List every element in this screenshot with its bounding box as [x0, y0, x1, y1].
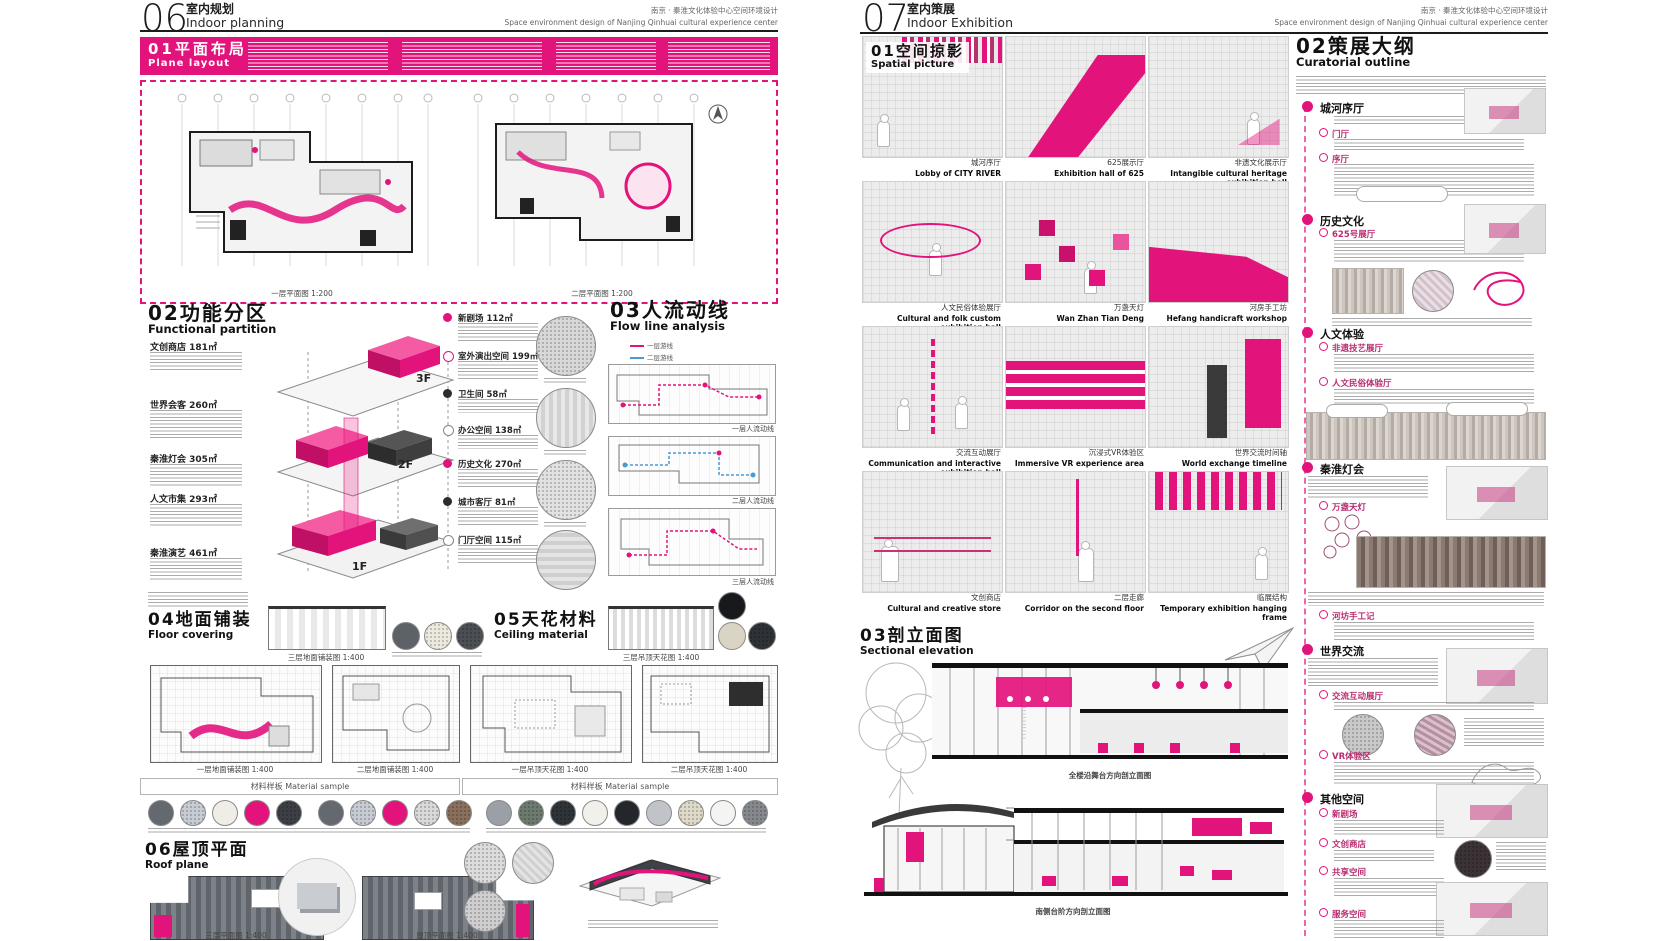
timeline-subitem: 新剧场 — [1332, 808, 1358, 820]
timeline-subitem: VR体验区 — [1332, 750, 1371, 762]
ceiling-plan-1 — [470, 665, 632, 763]
gallery-cell: 人文民俗体验展厅 Cultural and folk custom exhibi… — [862, 181, 1001, 332]
north-arrow — [709, 105, 727, 123]
render-image — [1005, 326, 1146, 448]
ceiling-plan-caption: 二层吊顶天花图 1:400 — [634, 764, 784, 775]
caption-cn: 临展结构 — [1148, 593, 1287, 604]
caption-cn: 河房手工坊 — [1148, 303, 1287, 314]
material-sample-bar: 材料样板 Material sample — [140, 778, 460, 795]
banner-paragraph — [556, 42, 656, 71]
presentation-board: 06 室内规划 Indoor planning 南京 · 秦淮文化体验中心空间环… — [0, 0, 1666, 941]
sample-swatch — [276, 800, 302, 826]
sample-swatch — [518, 800, 544, 826]
knot-sketch — [1464, 262, 1544, 318]
legend-dot — [443, 351, 454, 362]
roof-plan-caption: 屋顶平面图 1:400 — [362, 930, 532, 941]
gallery-cell: 沉浸式VR体验区 Immersive VR experience area — [1005, 326, 1144, 468]
gallery-cell: 交流互动展厅 Communication and interactive exh… — [862, 326, 1001, 477]
photo-strip — [1356, 536, 1546, 588]
sample-swatch — [710, 800, 736, 826]
ceiling-detail-caption: 三层吊顶天花图 1:400 — [586, 652, 736, 663]
section-caption-2: 南侧台阶方向剖立面图 — [893, 906, 1253, 917]
flow-plan-2 — [608, 436, 776, 496]
caption-en: Exhibition hall of 625 — [1005, 169, 1144, 178]
floor-plan-level2 — [460, 90, 740, 276]
legend-dot — [443, 535, 454, 546]
timeline-subitem: 河坊手工记 — [1332, 610, 1375, 622]
sample-swatch — [550, 800, 576, 826]
material-circle — [748, 622, 776, 650]
caption-cn: 世界交流时间轴 — [1148, 448, 1287, 459]
sample-swatch — [742, 800, 768, 826]
plan-layout-box: 一层平面图 1:200 二层平面图 1:200 — [140, 80, 778, 304]
timeline-subitem: 文创商店 — [1332, 838, 1366, 850]
project-title: 南京 · 秦淮文化体验中心空间环境设计Space environment des… — [470, 5, 778, 29]
floor-covering-detail-caption: 三层地面铺装图 1:400 — [246, 652, 406, 663]
timeline-axis — [1304, 106, 1306, 936]
photo-thumbnail — [1332, 268, 1404, 314]
render-image — [1148, 181, 1289, 303]
roof-plan-caption: 三层平面图 1:400 — [150, 930, 322, 941]
ceiling-plan-2 — [642, 665, 778, 763]
photo-circle — [1454, 840, 1492, 878]
section-caption-1: 全楼沿舞台方向剖立面图 — [930, 770, 1290, 781]
detail-circle — [536, 460, 596, 520]
caption-cn: 非遗文化展示厅 — [1148, 158, 1287, 169]
caption-en: World exchange timeline — [1148, 459, 1287, 468]
legend-dot — [443, 389, 452, 398]
panel-indoor-exhibition: 07 室内策展 Indoor Exhibition 南京 · 秦淮文化体验中心空… — [833, 0, 1666, 941]
legend-dot — [443, 425, 454, 436]
banner-paragraph — [248, 42, 388, 71]
gallery-cell: 二层走廊 Corridor on the second floor — [1005, 471, 1144, 613]
axon-thumbnail — [1436, 784, 1548, 838]
detail-circle — [464, 890, 506, 932]
curatorial-outline-column: 02策展大纲 Curatorial outline 城河序厅 门厅 序厅 历史文… — [1296, 36, 1552, 941]
section-02-heading: 02策展大纲 Curatorial outline — [1296, 36, 1416, 70]
sectional-elevation-1 — [930, 655, 1290, 765]
timeline-subitem: 万盏天灯 — [1332, 501, 1366, 513]
gallery-cell: 临展结构 Temporary exhibition hanging frame — [1148, 471, 1287, 622]
photo-circle — [1414, 714, 1456, 756]
timeline-item: 世界交流 — [1320, 643, 1364, 659]
header-rule — [140, 30, 778, 32]
floor-label-1f: 1F — [352, 560, 367, 573]
gallery-cell: 625展示厅 Exhibition hall of 625 — [1005, 36, 1144, 178]
material-circle — [718, 622, 746, 650]
timeline-subitem: 共享空间 — [1332, 866, 1366, 878]
floor-plan-level1 — [160, 90, 440, 276]
axon-thumbnail — [1464, 204, 1546, 254]
gallery-cell: 非遗文化展示厅 Intangible cultural heritage exh… — [1148, 36, 1287, 187]
roof-axonometric — [560, 826, 730, 926]
render-image — [862, 326, 1003, 448]
speech-bubble — [1356, 186, 1448, 202]
caption-cn: 交流互动展厅 — [862, 448, 1001, 459]
timeline-subitem: 625号展厅 — [1332, 228, 1375, 240]
axon-thumbnail — [1446, 648, 1548, 704]
sample-swatch — [414, 800, 440, 826]
gallery-cell: 河房手工坊 Hefang handicraft workshop — [1148, 181, 1287, 323]
sample-swatch — [582, 800, 608, 826]
caption-cn: 625展示厅 — [1005, 158, 1144, 169]
ceiling-plan-caption: 一层吊顶天花图 1:400 — [470, 764, 630, 775]
floor-plan-caption: 一层地面铺装图 1:400 — [150, 764, 320, 775]
flow-legend-1: 一层游线 — [630, 340, 673, 350]
speech-bubble — [1446, 402, 1528, 416]
panel-indoor-planning: 06 室内规划 Indoor planning 南京 · 秦淮文化体验中心空间环… — [0, 0, 833, 941]
detail-circle — [536, 316, 596, 376]
caption-en: Hefang handicraft workshop — [1148, 314, 1287, 323]
flow-plan-1 — [608, 364, 776, 424]
legend-dot — [443, 497, 452, 506]
flow-plan-3 — [608, 508, 776, 576]
render-image — [1148, 471, 1289, 593]
sample-swatch — [614, 800, 640, 826]
axon-thumbnail — [1436, 882, 1548, 936]
flow-caption-2: 二层人流动线 — [650, 496, 774, 506]
photo-circle — [1412, 270, 1454, 312]
detail-circle — [464, 842, 506, 884]
material-circle — [456, 622, 484, 650]
caption-cn: 文创商店 — [862, 593, 1001, 604]
legend-dot — [443, 459, 452, 468]
caption-en: Cultural and creative store — [862, 604, 1001, 613]
gallery-cell: 世界交流时间轴 World exchange timeline — [1148, 326, 1287, 468]
section-05-heading: 05天花材料 Ceiling material — [494, 612, 598, 642]
caption-cn: 人文民俗体验展厅 — [862, 303, 1001, 314]
timeline-item: 历史文化 — [1320, 213, 1364, 229]
sample-swatch — [180, 800, 206, 826]
caption-en: Lobby of CITY RIVER — [862, 169, 1001, 178]
caption-cn: 沉浸式VR体验区 — [1005, 448, 1144, 459]
ceiling-detail — [608, 606, 714, 650]
sample-swatch — [148, 800, 174, 826]
floor-covering-detail — [268, 606, 386, 650]
timeline-item: 城河序厅 — [1320, 100, 1364, 116]
sample-swatch — [244, 800, 270, 826]
section-06-heading: 06屋顶平面 Roof plane — [145, 842, 249, 872]
render-image — [1005, 471, 1146, 593]
photo-strip — [1306, 412, 1546, 460]
section-01-heading: 01空间掠影 Spatial picture — [866, 42, 969, 73]
flow-legend-2: 二层游线 — [630, 352, 673, 362]
timeline-subitem: 服务空间 — [1332, 908, 1366, 920]
material-circle — [718, 592, 746, 620]
caption-en: Temporary exhibition hanging frame — [1148, 604, 1287, 622]
sample-swatch — [318, 800, 344, 826]
panel-title-en: Indoor Exhibition — [907, 16, 1013, 30]
timeline-item: 其他空间 — [1320, 791, 1364, 807]
floor-plan-caption: 二层地面铺装图 1:400 — [320, 764, 470, 775]
speech-bubble — [1326, 404, 1388, 418]
material-sample-bar: 材料样板 Material sample — [462, 778, 778, 795]
roof-render-circle — [278, 858, 356, 936]
render-image — [1148, 326, 1289, 448]
material-circle — [392, 622, 420, 650]
flow-caption-1: 一层人流动线 — [650, 424, 774, 434]
sample-swatch — [382, 800, 408, 826]
exploded-axonometric — [248, 322, 473, 592]
sample-swatch — [446, 800, 472, 826]
render-image — [1005, 36, 1146, 158]
plan1-caption: 一层平面图 1:200 — [202, 288, 402, 299]
section-04-heading: 04地面铺装 Floor covering — [148, 612, 252, 642]
render-image — [1005, 181, 1146, 303]
render-image — [1148, 36, 1289, 158]
gallery-cell: 文创商店 Cultural and creative store — [862, 471, 1001, 613]
axon-thumbnail — [1446, 466, 1548, 520]
floor-label-3f: 3F — [416, 372, 431, 385]
timeline-subitem: 非遗技艺展厅 — [1332, 342, 1383, 354]
detail-circle — [536, 388, 596, 448]
project-title: 南京 · 秦淮文化体验中心空间环境设计Space environment des… — [1240, 5, 1548, 29]
caption-cn: 二层走廊 — [1005, 593, 1144, 604]
caption-en: Immersive VR experience area — [1005, 459, 1144, 468]
timeline-item: 人文体验 — [1320, 326, 1364, 342]
floor-label-2f: 2F — [398, 458, 413, 471]
sample-swatch — [486, 800, 512, 826]
section-03-heading: 03人流动线 Flow line analysis — [610, 300, 730, 334]
section-01-title-en: Plane layout — [148, 58, 247, 69]
caption-en: Wan Zhan Tian Deng — [1005, 314, 1144, 323]
flow-caption-3: 三层人流动线 — [650, 577, 774, 587]
axon-thumbnail — [1464, 88, 1546, 134]
gallery-cell: 万盏天灯 Wan Zhan Tian Deng — [1005, 181, 1144, 323]
caption-en: Corridor on the second floor — [1005, 604, 1144, 613]
legend-dot — [443, 313, 452, 322]
timeline-subitem: 交流互动展厅 — [1332, 690, 1383, 702]
detail-circle — [536, 530, 596, 590]
panel-title-en: Indoor planning — [186, 16, 284, 30]
timeline-item: 秦淮灯会 — [1320, 461, 1364, 477]
sectional-elevation-2 — [862, 788, 1290, 902]
banner-paragraph — [668, 42, 770, 71]
render-image — [862, 181, 1003, 303]
caption-cn: 万盏天灯 — [1005, 303, 1144, 314]
header-rule — [860, 32, 1548, 34]
detail-circle — [512, 842, 554, 884]
timeline-subitem: 人文民俗体验厅 — [1332, 377, 1392, 389]
render-image — [862, 471, 1003, 593]
sample-swatch — [212, 800, 238, 826]
section-01-banner: 01平面布局 Plane layout — [140, 37, 778, 75]
banner-paragraph — [402, 42, 542, 71]
sample-swatch — [646, 800, 672, 826]
caption-cn: 城河序厅 — [862, 158, 1001, 169]
material-circle — [424, 622, 452, 650]
sample-swatch — [678, 800, 704, 826]
sample-swatch — [350, 800, 376, 826]
section-01-title-cn: 01平面布局 — [148, 40, 247, 58]
floor-covering-plan-2 — [332, 665, 460, 763]
floor-covering-plan-1 — [150, 665, 322, 763]
